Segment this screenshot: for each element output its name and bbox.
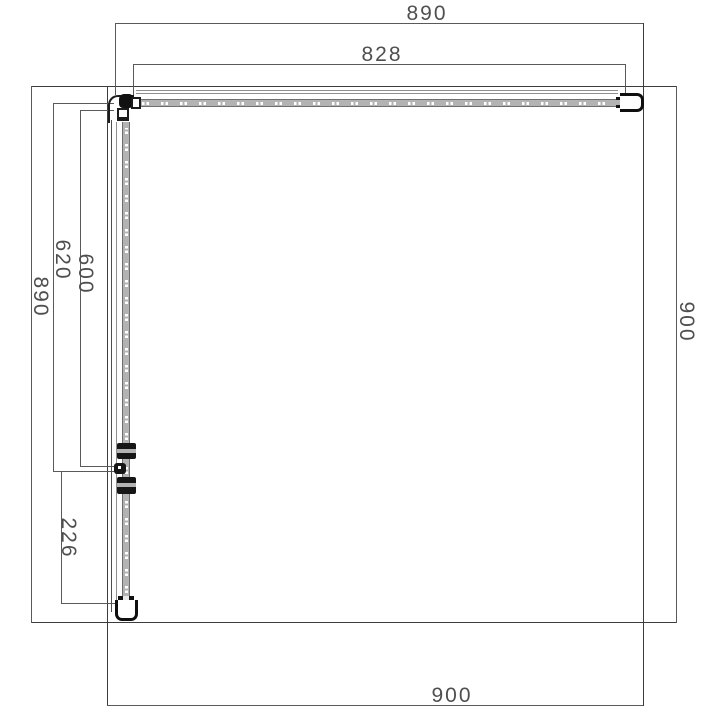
dim-label-bottom-overall: 900	[430, 686, 474, 706]
side-glass-panel	[122, 122, 130, 597]
top-support-rail-inner	[136, 93, 618, 94]
extension-line-left-to-hinge-top	[53, 103, 114, 104]
dimension-line-left-overall	[31, 86, 32, 623]
side-glass-dash-pattern	[125, 128, 128, 593]
pivot-clamp	[114, 463, 126, 474]
floor-mount-bracket	[115, 600, 138, 621]
dimension-line-left-to-hinge	[53, 103, 54, 471]
extension-line-top-glass-left	[133, 64, 134, 97]
hinge-lower	[117, 477, 136, 494]
side-support-rail-inner	[116, 122, 117, 600]
dimension-line-bottom-overall	[107, 705, 643, 706]
technical-drawing-canvas: 890 828 890 620 600 226 900 900	[0, 0, 720, 720]
extension-line-top-glass-right	[625, 64, 626, 94]
dim-label-top-overall: 890	[405, 4, 449, 24]
enclosure-right-edge	[643, 23, 644, 706]
dim-label-right-overall: 900	[676, 300, 696, 344]
enclosure-left-edge	[107, 86, 108, 706]
wall-mount-bracket	[620, 93, 644, 112]
dim-label-left-glass: 600	[75, 252, 95, 296]
side-support-rail-outer	[111, 120, 112, 612]
corner-glass-clamp-top	[131, 97, 141, 109]
dim-label-left-to-hinge: 620	[52, 238, 72, 282]
pivot-dot	[118, 466, 121, 469]
dim-label-top-glass: 828	[360, 45, 404, 65]
dim-label-left-overall: 890	[30, 275, 50, 319]
enclosure-top-edge	[31, 86, 677, 87]
top-glass-panel	[136, 99, 623, 107]
top-support-rail-outer	[136, 90, 618, 91]
extension-line-top-overall-left	[115, 23, 116, 95]
enclosure-bottom-edge	[31, 622, 677, 623]
extension-line-left-bottom-end	[61, 603, 117, 604]
top-glass-dash-pattern	[142, 102, 619, 105]
hinge-upper	[117, 443, 136, 459]
dimension-line-top-overall	[115, 23, 643, 24]
dim-label-left-bottom: 226	[58, 516, 78, 560]
corner-glass-clamp-band	[117, 117, 129, 121]
dimension-line-right-overall	[676, 86, 677, 623]
